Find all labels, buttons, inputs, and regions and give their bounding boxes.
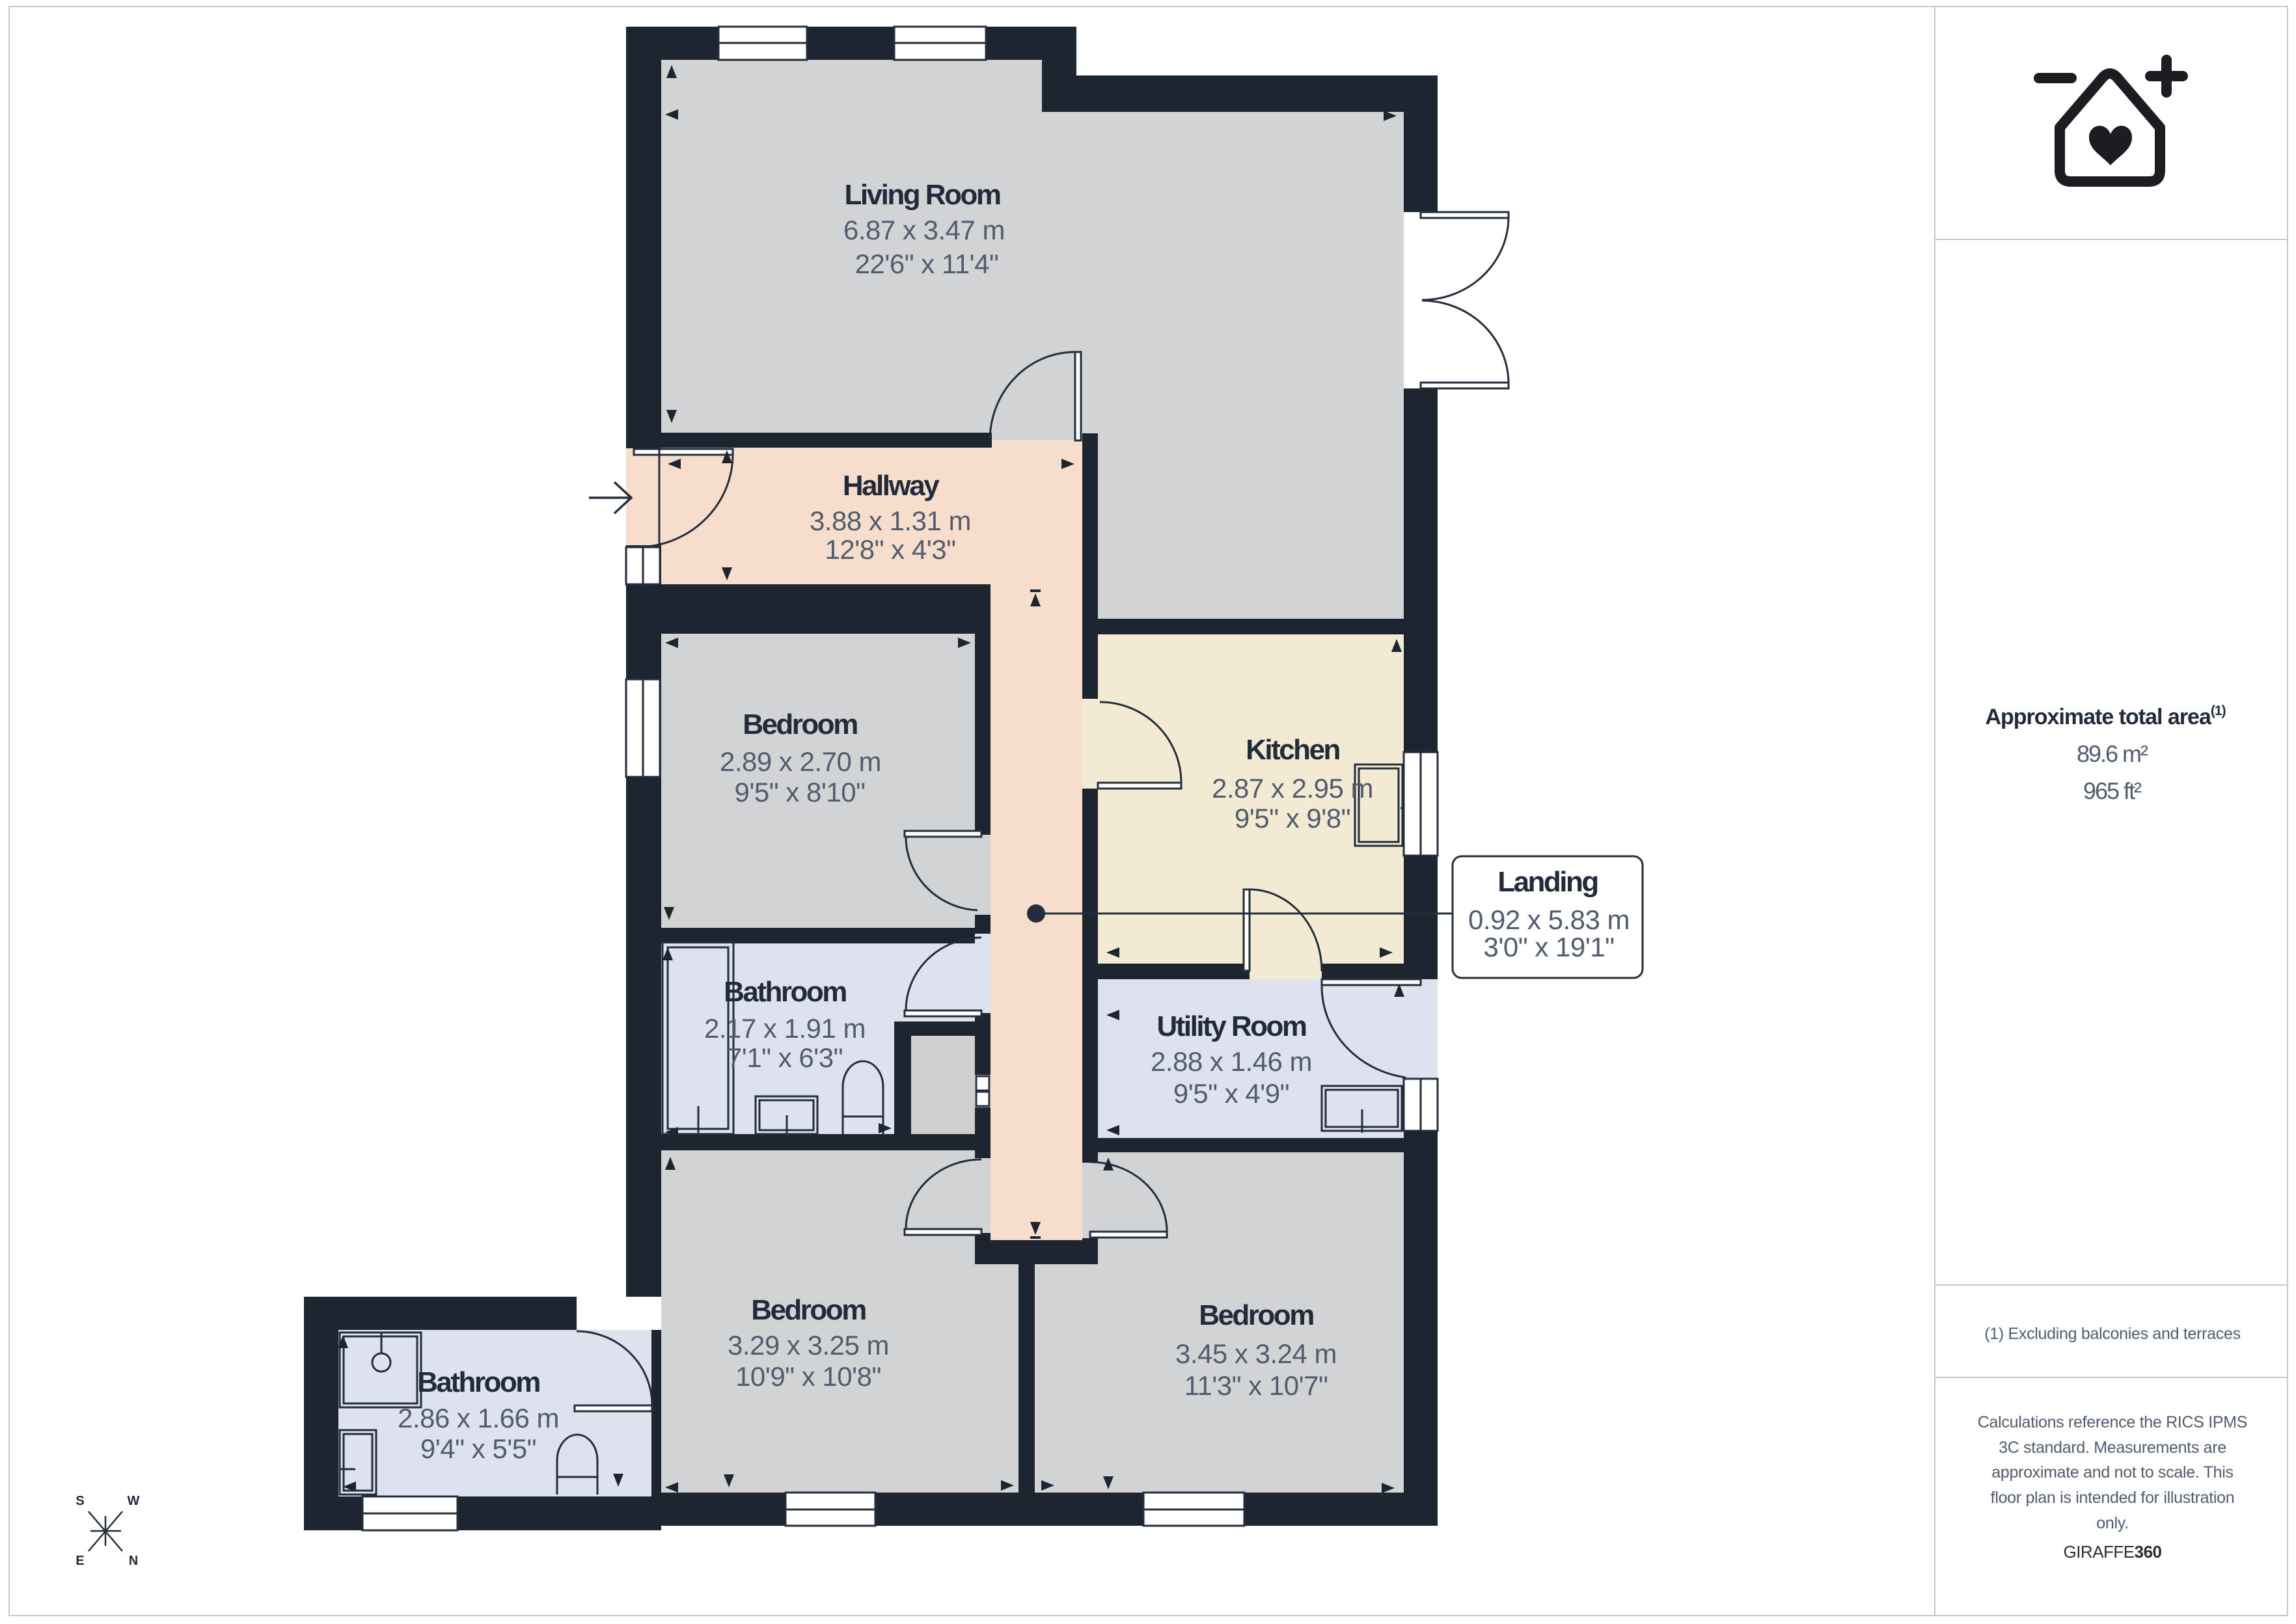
svg-text:9'5" x 8'10": 9'5" x 8'10" <box>735 777 866 807</box>
svg-text:2.86 x 1.66 m: 2.86 x 1.66 m <box>398 1403 559 1433</box>
svg-text:2.87 x 2.95 m: 2.87 x 2.95 m <box>1212 773 1373 804</box>
svg-text:Calculations reference the RIC: Calculations reference the RICS IPMS <box>1978 1413 2247 1431</box>
svg-text:approximate and not to scale.: approximate and not to scale. This <box>1991 1463 2234 1482</box>
svg-text:9'5" x 9'8": 9'5" x 9'8" <box>1235 803 1350 833</box>
svg-text:0.92 x 5.83 m: 0.92 x 5.83 m <box>1468 904 1630 935</box>
svg-text:2.89 x 2.70 m: 2.89 x 2.70 m <box>720 746 881 777</box>
svg-text:Kitchen: Kitchen <box>1246 734 1339 766</box>
svg-text:GIRAFFE360: GIRAFFE360 <box>2063 1542 2161 1562</box>
svg-text:2.17 x 1.91 m: 2.17 x 1.91 m <box>704 1013 866 1044</box>
svg-text:Bathroom: Bathroom <box>724 976 846 1008</box>
svg-text:Bathroom: Bathroom <box>417 1366 540 1398</box>
svg-text:89.6 m²: 89.6 m² <box>2077 740 2148 767</box>
svg-text:22'6" x 11'4": 22'6" x 11'4" <box>855 249 999 279</box>
svg-text:Bedroom: Bedroom <box>751 1294 866 1326</box>
svg-text:W: W <box>128 1494 140 1508</box>
svg-text:9'5" x 4'9": 9'5" x 4'9" <box>1173 1078 1289 1109</box>
svg-text:Landing: Landing <box>1497 866 1598 898</box>
svg-text:3.45 x 3.24 m: 3.45 x 3.24 m <box>1175 1338 1337 1369</box>
svg-text:965 ft²: 965 ft² <box>2083 778 2142 804</box>
svg-text:2.88 x 1.46 m: 2.88 x 1.46 m <box>1151 1046 1312 1077</box>
svg-text:Hallway: Hallway <box>843 470 940 502</box>
svg-text:6.87 x 3.47 m: 6.87 x 3.47 m <box>843 215 1005 245</box>
svg-text:E: E <box>75 1554 84 1568</box>
svg-text:Living Room: Living Room <box>845 179 1000 211</box>
svg-text:3.88 x 1.31 m: 3.88 x 1.31 m <box>810 506 971 536</box>
svg-text:10'9" x 10'8": 10'9" x 10'8" <box>735 1361 881 1392</box>
svg-text:S: S <box>75 1494 84 1508</box>
svg-text:only.: only. <box>2096 1514 2128 1532</box>
svg-text:Approximate total area(1): Approximate total area(1) <box>1985 703 2225 729</box>
svg-text:N: N <box>129 1554 138 1568</box>
svg-text:3'0" x 19'1": 3'0" x 19'1" <box>1484 932 1615 962</box>
svg-text:(1) Excluding balconies and te: (1) Excluding balconies and terraces <box>1984 1325 2241 1343</box>
svg-text:12'8" x 4'3": 12'8" x 4'3" <box>825 534 956 565</box>
svg-text:11'3" x 10'7": 11'3" x 10'7" <box>1184 1370 1328 1401</box>
svg-text:Bedroom: Bedroom <box>1199 1299 1313 1331</box>
svg-text:3.29 x 3.25 m: 3.29 x 3.25 m <box>728 1330 889 1360</box>
svg-text:7'1" x 6'3": 7'1" x 6'3" <box>727 1042 843 1073</box>
svg-text:9'4" x 5'5": 9'4" x 5'5" <box>420 1433 536 1464</box>
svg-text:Bedroom: Bedroom <box>743 709 857 740</box>
svg-text:Utility Room: Utility Room <box>1156 1010 1305 1042</box>
svg-text:3C standard. Measurements are: 3C standard. Measurements are <box>1999 1439 2226 1457</box>
svg-text:floor plan is intended for ill: floor plan is intended for illustration <box>1991 1489 2235 1507</box>
